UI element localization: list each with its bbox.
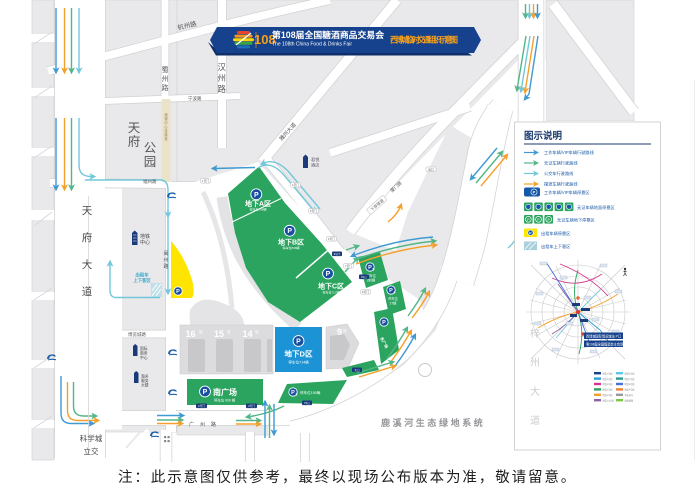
svg-text:西博城临时交通组织示意图: 西博城临时交通组织示意图 (390, 35, 458, 45)
svg-text:出口: 出口 (428, 168, 434, 172)
svg-text:汉州路: 汉州路 (218, 62, 227, 94)
svg-text:The 108th China Food & Drinks: The 108th China Food & Drinks Fair (272, 42, 352, 48)
svg-text:工作车辆/VIP车辆行驶路线: 工作车辆/VIP车辆行驶路线 (544, 149, 595, 156)
svg-text:闽州路: 闽州路 (164, 250, 169, 270)
svg-text:南广场: 南广场 (213, 387, 237, 397)
svg-text:馆: 馆 (255, 329, 259, 334)
svg-text:6号门: 6号门 (328, 237, 335, 241)
svg-text:公交车行驶路线: 公交车行驶路线 (544, 170, 574, 177)
svg-text:道: 道 (530, 414, 540, 427)
svg-text:宁波路: 宁波路 (188, 95, 202, 102)
svg-text:梓: 梓 (530, 327, 540, 340)
svg-text:1号门: 1号门 (202, 179, 209, 183)
svg-text:3: 3 (296, 393, 298, 397)
svg-text:停车位714辆: 停车位714辆 (288, 360, 309, 365)
svg-text:州: 州 (530, 357, 540, 369)
svg-text:图示说明: 图示说明 (524, 130, 563, 142)
svg-text:停车位: 停车位 (388, 296, 398, 301)
svg-text:地下D区: 地下D区 (285, 349, 313, 359)
svg-text:州: 州 (200, 422, 205, 428)
svg-text:P4口: P4口 (361, 276, 367, 279)
svg-text:广: 广 (189, 421, 194, 428)
svg-text:服务: 服务 (141, 378, 149, 383)
svg-text:停车位717辆: 停车位717辆 (322, 289, 339, 294)
svg-text:西博城国际博览城站 P口: 西博城国际博览城站 P口 (586, 334, 621, 339)
svg-text:14: 14 (243, 329, 253, 339)
svg-text:7号门: 7号门 (345, 264, 352, 268)
svg-text:P3口: P3口 (304, 402, 310, 405)
svg-text:2号门: 2号门 (198, 404, 205, 408)
svg-text:馆: 馆 (199, 329, 203, 334)
svg-text:8号门: 8号门 (362, 290, 369, 294)
svg-text:3号门: 3号门 (248, 404, 255, 408)
svg-text:15: 15 (214, 329, 224, 339)
svg-text:东口: 东口 (354, 368, 360, 372)
svg-text:16: 16 (186, 329, 196, 339)
svg-text:P: P (533, 190, 536, 195)
svg-text:大楼: 大楼 (141, 383, 149, 388)
svg-text:停车位848辆: 停车位848辆 (282, 245, 299, 250)
svg-text:出租车辆停靠区: 出租车辆停靠区 (541, 230, 570, 237)
svg-text:蜀州路: 蜀州路 (162, 66, 169, 92)
svg-text:5号门: 5号门 (310, 209, 317, 213)
svg-text:中心: 中心 (140, 355, 148, 360)
svg-text:停车位708辆: 停车位708辆 (249, 207, 266, 212)
svg-text:9: 9 (337, 327, 342, 337)
svg-text:停车位150辆: 停车位150辆 (300, 390, 321, 395)
svg-text:中心: 中心 (140, 239, 150, 246)
svg-text:福州路: 福州路 (143, 178, 157, 185)
svg-text:无证车辆地面停靠区: 无证车辆地面停靠区 (577, 204, 615, 211)
svg-text:工作车辆/VIP车辆停靠区: 工作车辆/VIP车辆停靠区 (544, 189, 590, 196)
svg-text:地铁: 地铁 (140, 233, 150, 240)
svg-text:馆: 馆 (227, 329, 231, 334)
svg-text:27辆: 27辆 (390, 301, 398, 306)
svg-text:出租车上下客区: 出租车上下客区 (541, 243, 570, 250)
svg-text:海关: 海关 (141, 374, 149, 379)
svg-text:科学城: 科学城 (80, 433, 103, 443)
svg-text:第108届全国糖酒商品交易会: 第108届全国糖酒商品交易会 (272, 29, 384, 40)
svg-text:国际: 国际 (140, 346, 148, 351)
svg-text:停车位 600 辆: 停车位 600 辆 (214, 398, 236, 403)
svg-text:酒店: 酒店 (311, 162, 319, 169)
svg-text:立交: 立交 (84, 446, 99, 456)
svg-text:地下C区: 地下C区 (318, 282, 344, 291)
svg-text:馆: 馆 (343, 328, 347, 333)
svg-text:路: 路 (211, 421, 216, 428)
svg-text:摆渡车辆行驶路线: 摆渡车辆行驶路线 (544, 181, 578, 188)
svg-text:注：此示意图仅供参考，最终以现场公布版本为准，敬请留意。: 注：此示意图仅供参考，最终以现场公布版本为准，敬请留意。 (118, 468, 577, 486)
svg-text:无证车辆地下停靠区: 无证车辆地下停靠区 (557, 217, 595, 224)
svg-text:博览城路: 博览城路 (128, 331, 146, 338)
svg-text:第108届全国糖酒会主会场: 第108届全国糖酒会主会场 (586, 342, 623, 347)
svg-text:4号门: 4号门 (292, 183, 299, 187)
svg-text:5: 5 (373, 268, 375, 272)
svg-text:鹿溪河生态绿地系统: 鹿溪河生态绿地系统 (380, 417, 485, 428)
svg-text:大: 大 (530, 385, 540, 398)
svg-text:9号门: 9号门 (334, 252, 341, 256)
svg-text:上下客区: 上下客区 (133, 277, 151, 284)
svg-text:商务: 商务 (140, 351, 148, 356)
svg-text:无证车辆行驶路线: 无证车辆行驶路线 (544, 160, 578, 167)
svg-text:4: 4 (394, 291, 396, 295)
